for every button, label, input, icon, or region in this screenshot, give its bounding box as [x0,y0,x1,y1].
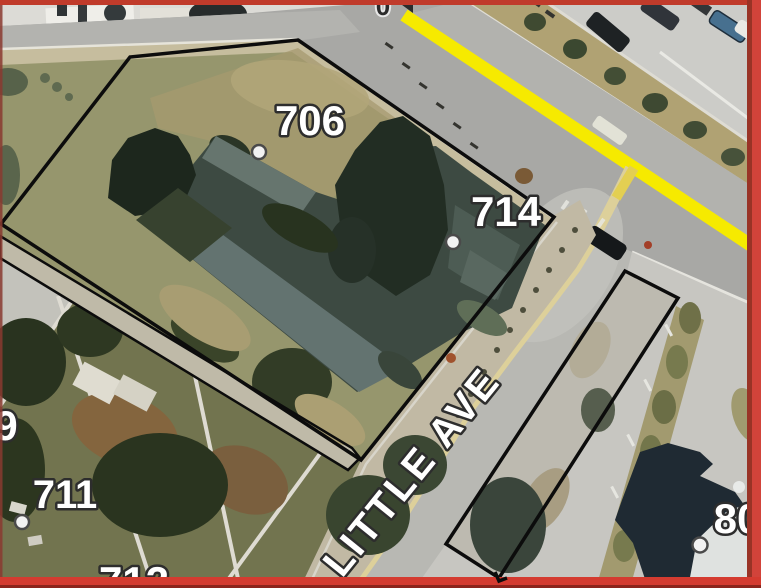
svg-text:714: 714 [471,188,542,235]
svg-text:711: 711 [33,473,98,517]
svg-text:706: 706 [275,97,345,144]
svg-text:9: 9 [0,402,18,449]
